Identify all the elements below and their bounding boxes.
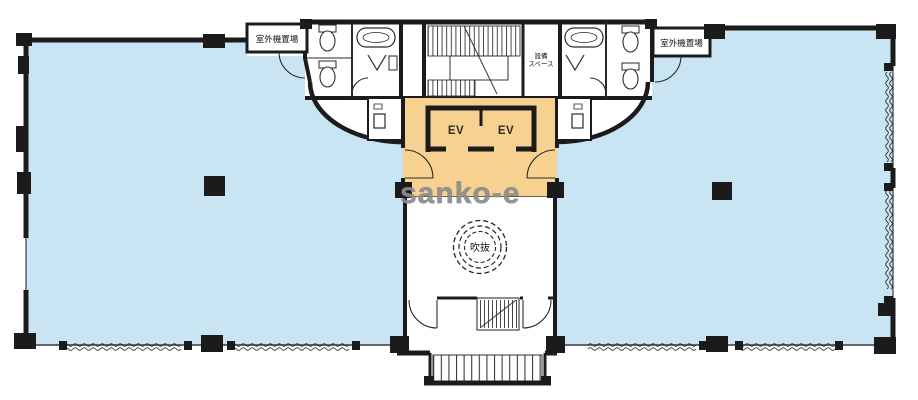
elevator-2-label: EV xyxy=(498,125,514,137)
equipment-space-label-line2: スペース xyxy=(528,60,553,68)
toilet-fixture xyxy=(320,67,335,87)
outdoor-unit-left-label: 室外機置場 xyxy=(256,34,299,44)
toilet-fixture xyxy=(320,31,335,51)
floorplan-canvas: 設備 スペース 室外機置場 室外機置場 EV EV xyxy=(0,0,918,400)
entrance-lobby: 吹抜 xyxy=(397,197,557,383)
toilet-fixture xyxy=(623,32,638,52)
equipment-space-label-line1: 設備 xyxy=(535,51,549,60)
toilet-fixture xyxy=(623,69,638,89)
entrance-steps xyxy=(424,353,551,383)
elevator-1-label: EV xyxy=(448,125,464,137)
watermark-text: sanko-e xyxy=(400,177,520,210)
outdoor-unit-right-label: 室外機置場 xyxy=(660,38,703,48)
service-cell-left xyxy=(368,98,402,140)
floorplan-drawing: 設備 スペース 室外機置場 室外機置場 EV EV xyxy=(0,0,918,400)
atrium-label: 吹抜 xyxy=(470,241,490,254)
service-cell-right xyxy=(557,98,591,140)
stairwell-lower xyxy=(477,298,519,330)
